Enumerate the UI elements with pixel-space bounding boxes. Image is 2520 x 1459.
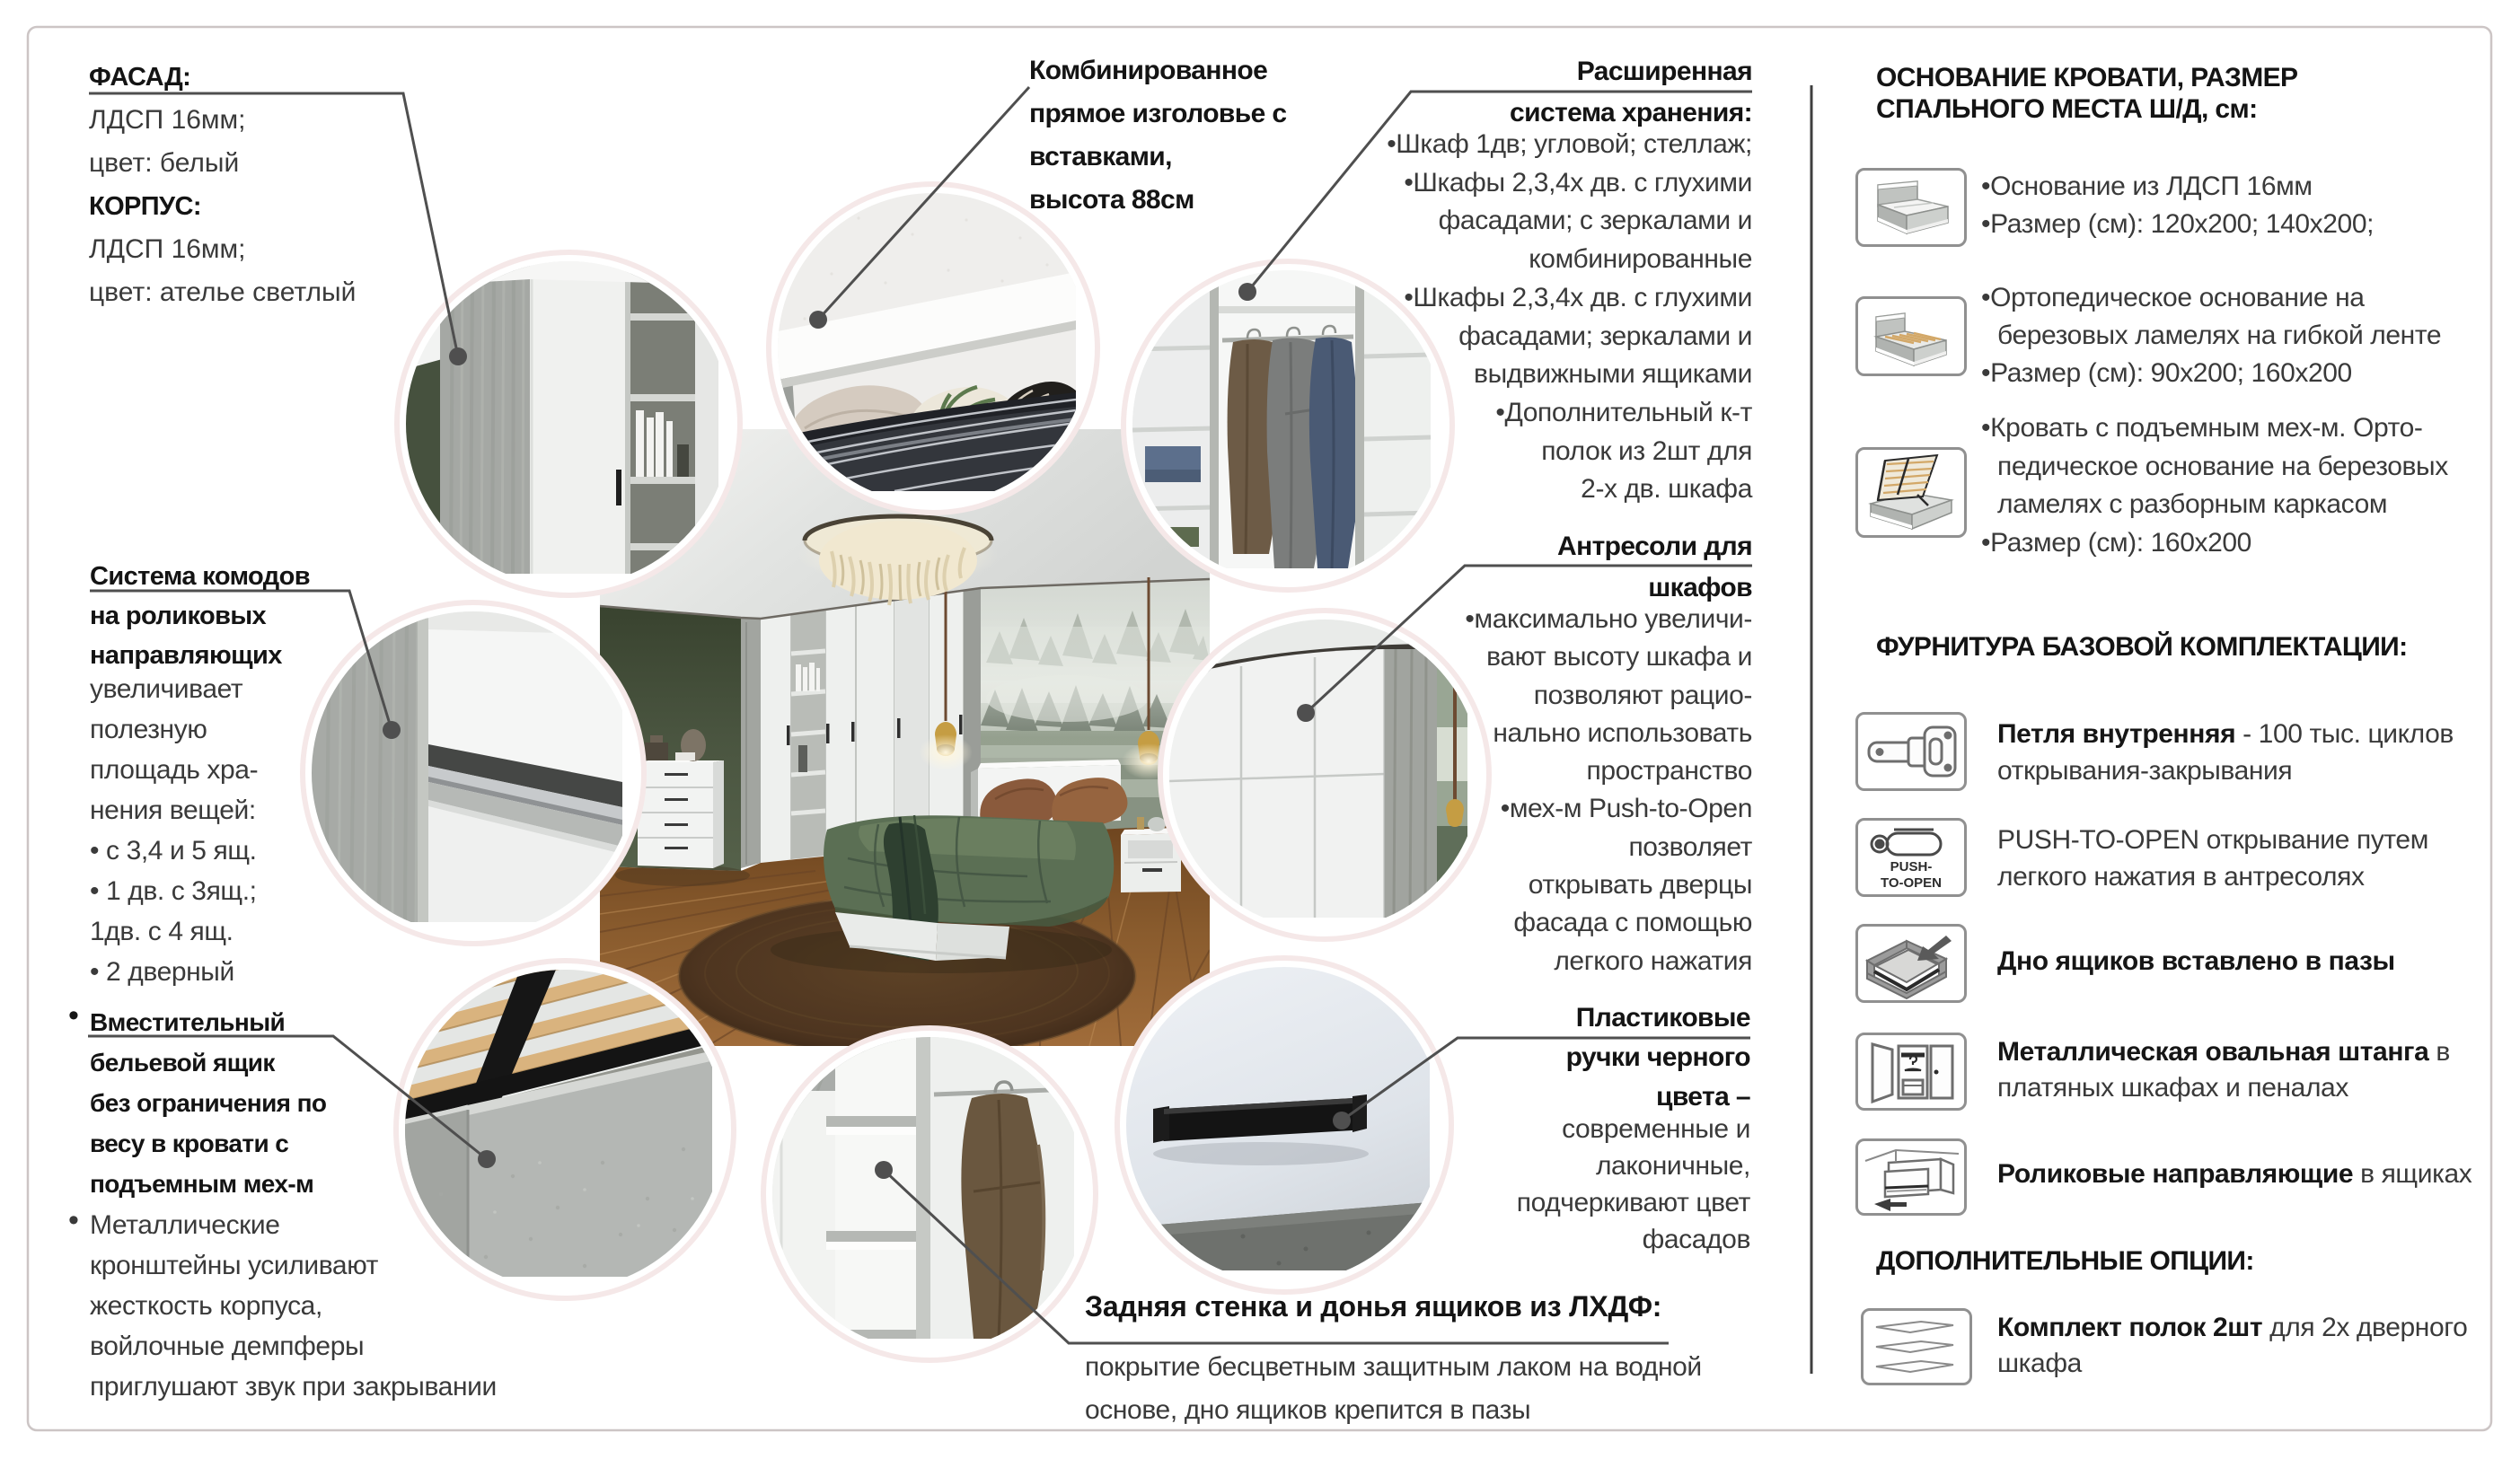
svg-text:TO-OPEN: TO-OPEN [1881, 875, 1942, 891]
svg-text:PUSH-: PUSH- [1890, 859, 1933, 875]
